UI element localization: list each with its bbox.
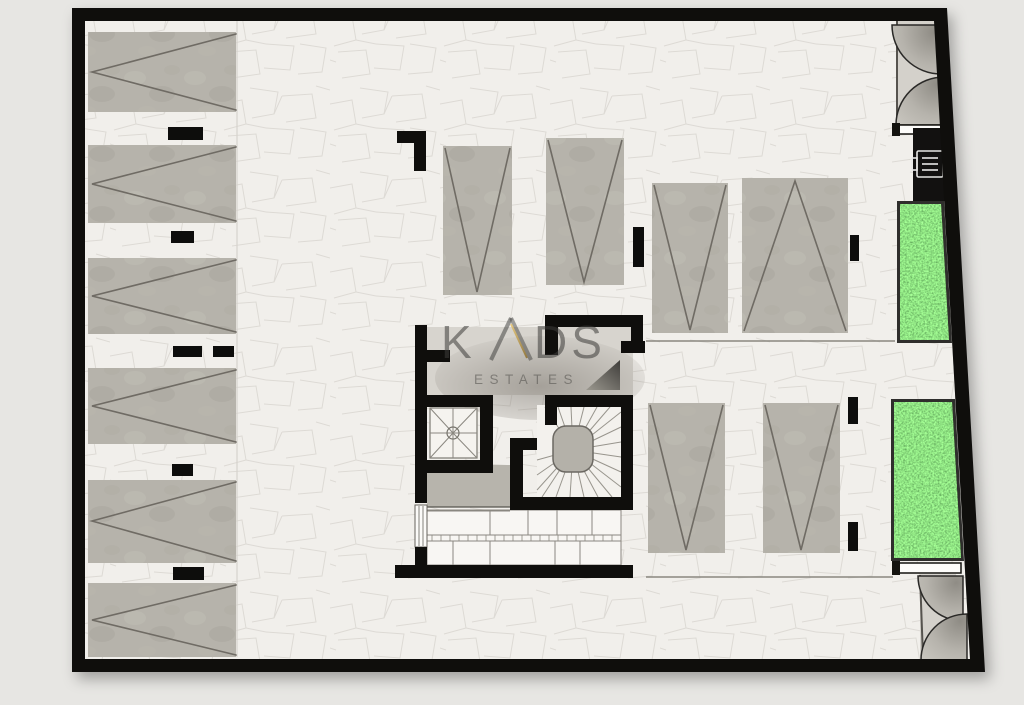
watermark-subtitle: ESTATES bbox=[474, 372, 579, 387]
parking-space bbox=[763, 403, 840, 553]
parking-space bbox=[443, 146, 512, 295]
storage-hatch-ticks bbox=[432, 535, 612, 541]
parking-space bbox=[88, 480, 236, 563]
parking-space bbox=[88, 258, 236, 334]
gate-threshold bbox=[893, 563, 961, 573]
green-planter-bottom bbox=[891, 399, 964, 561]
storage-row bbox=[415, 505, 621, 565]
storage-side-door bbox=[415, 505, 427, 547]
structural-pillar bbox=[633, 227, 644, 267]
parking-space bbox=[648, 403, 725, 553]
watermark-letter-k: K bbox=[441, 316, 476, 368]
stair-newel bbox=[553, 426, 593, 472]
structural-pillar bbox=[850, 235, 859, 261]
parking-space bbox=[652, 183, 728, 333]
parking-space bbox=[88, 32, 236, 112]
parking-space bbox=[88, 583, 236, 657]
green-planter-top bbox=[897, 201, 952, 343]
parking-space bbox=[546, 138, 624, 285]
watermark-letters-ds: DS bbox=[534, 316, 606, 368]
elevator-shaft bbox=[430, 408, 477, 458]
floor-plan-drawing: K DS ESTATES bbox=[0, 0, 1024, 705]
parking-space bbox=[88, 368, 236, 444]
floor-plan-page: K DS ESTATES bbox=[0, 0, 1024, 705]
parking-space bbox=[742, 178, 848, 333]
parking-space bbox=[88, 145, 236, 223]
stair-elevator-core bbox=[395, 315, 645, 578]
